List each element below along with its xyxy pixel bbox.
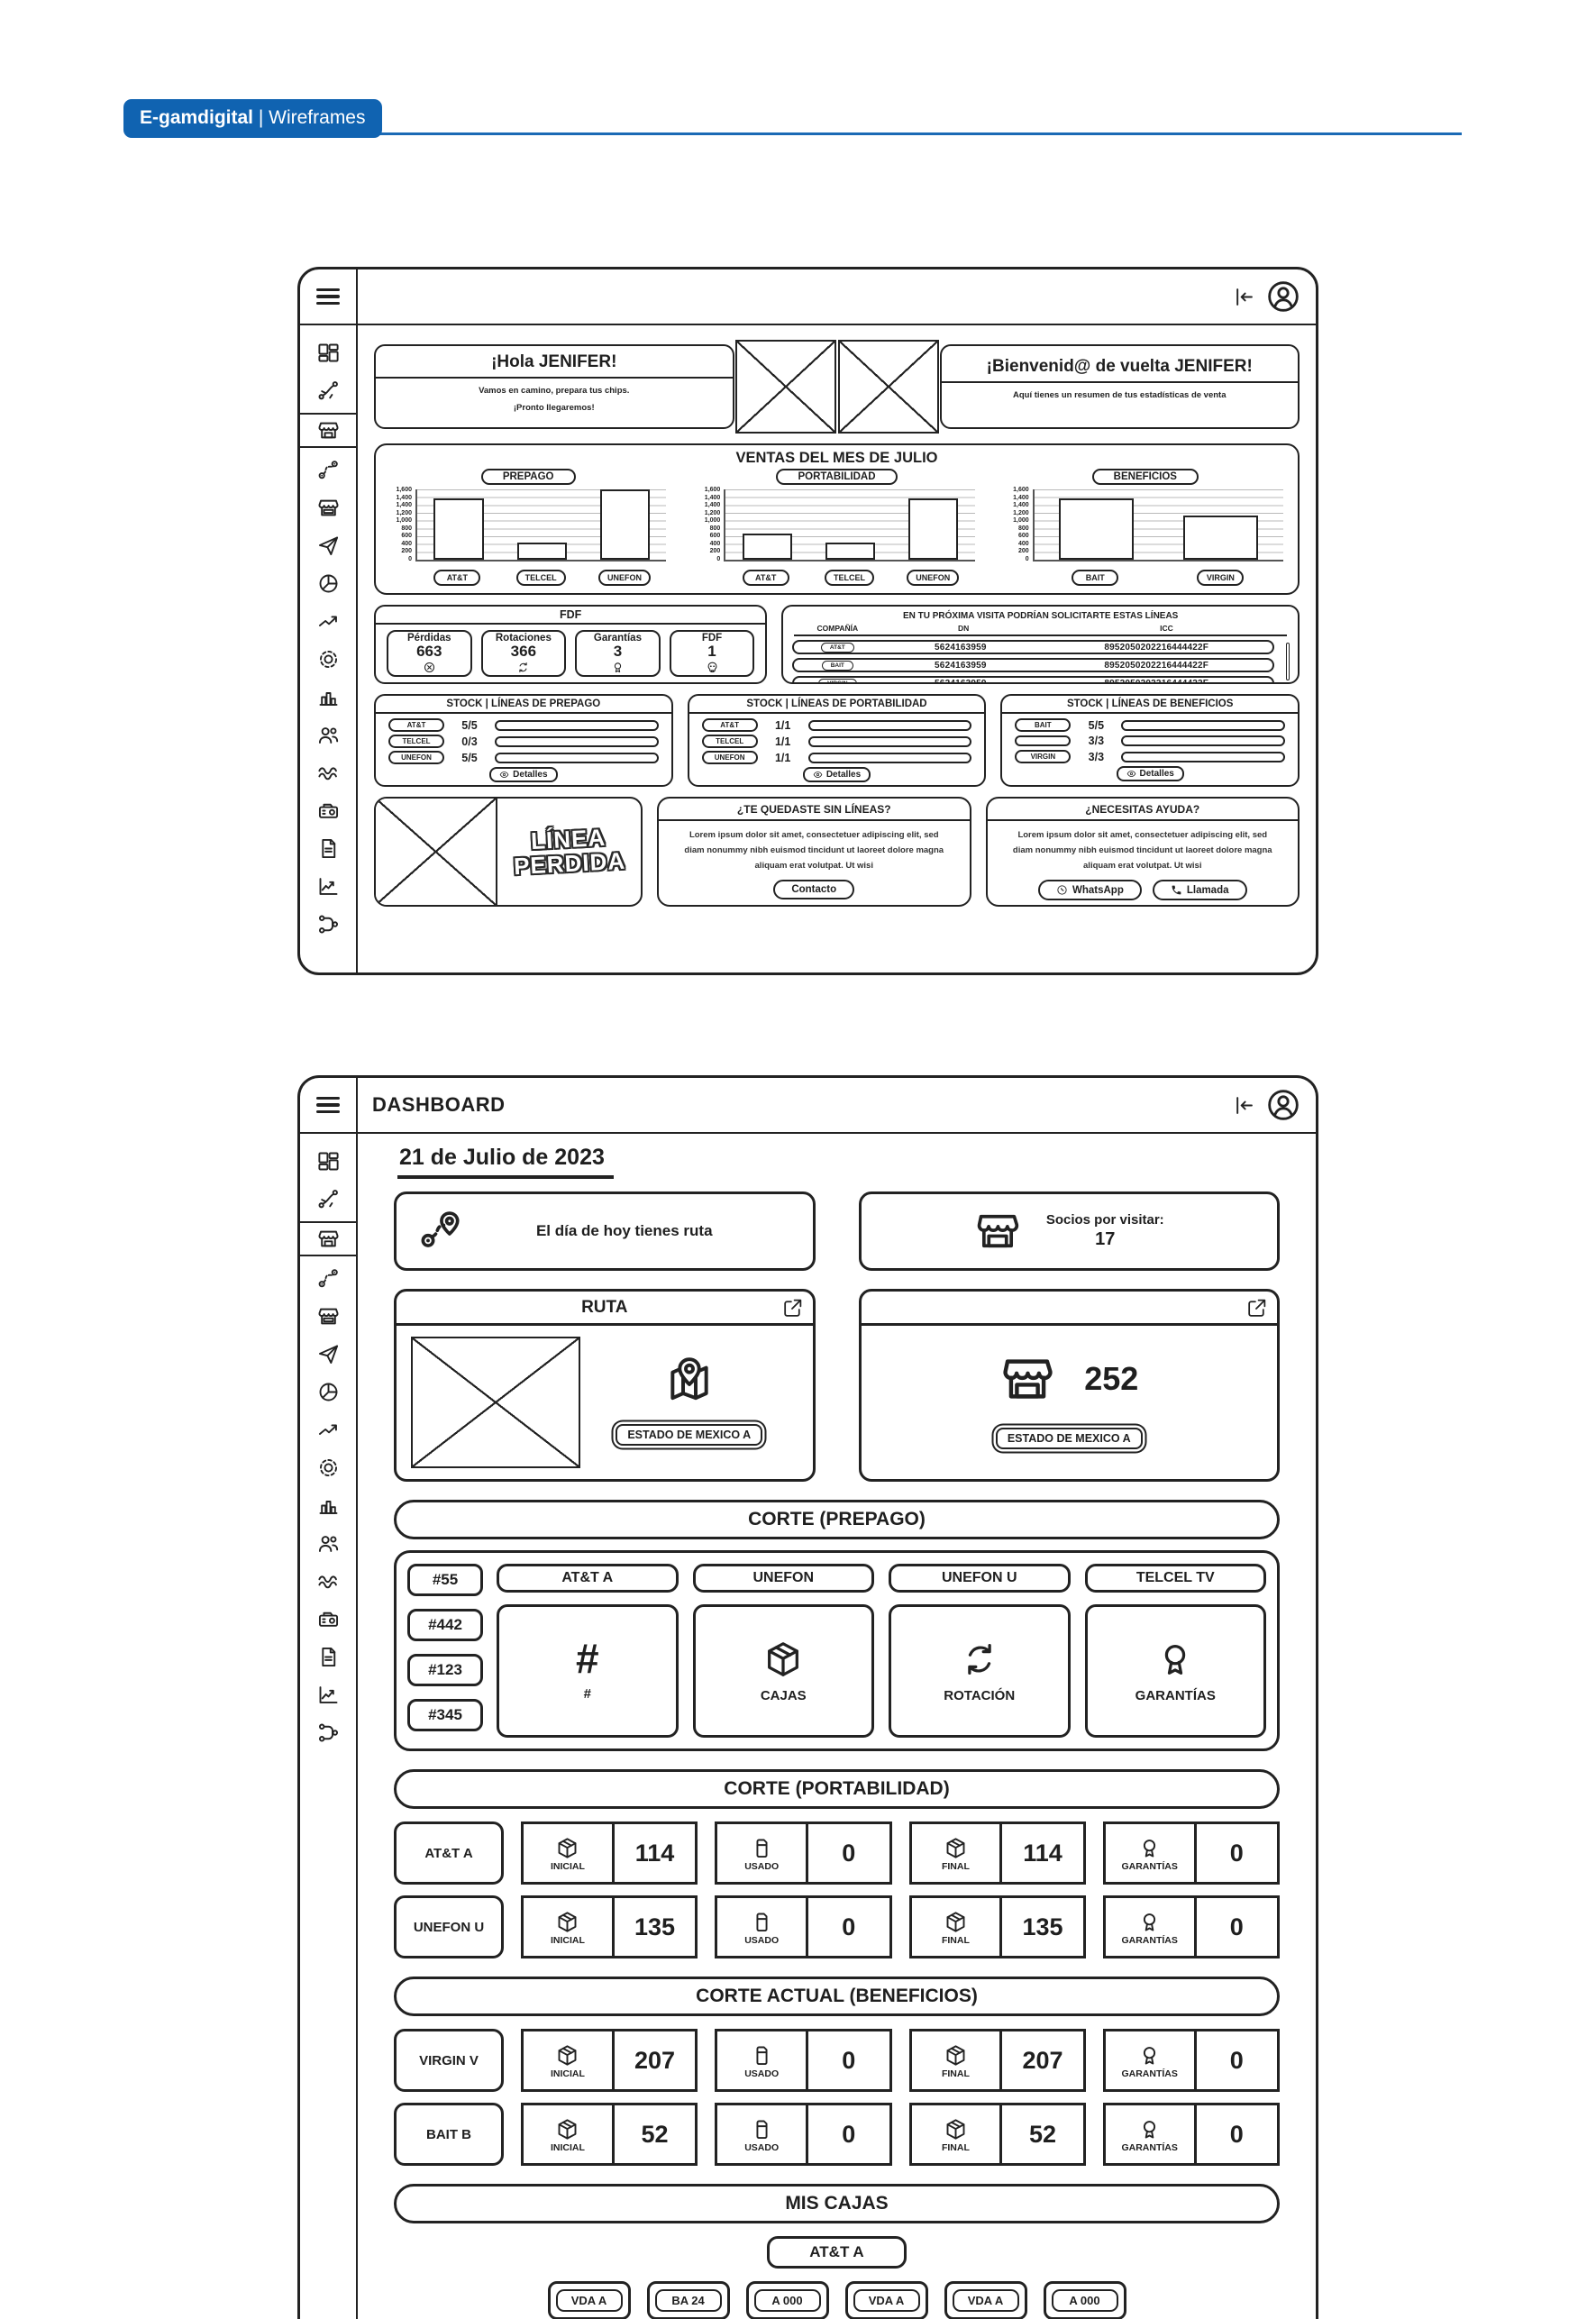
column-ICC: ICC [1046, 624, 1287, 633]
company-chip: AT&T [821, 643, 854, 653]
app-header [358, 269, 1316, 325]
x-label-UNEFON: UNEFON [598, 570, 651, 586]
greeting-subtitle: Vamos en camino, prepara tus chips. ¡Pro… [376, 379, 733, 416]
rotate-icon [959, 1639, 1000, 1680]
stock-value: 3/3 [1080, 751, 1112, 763]
dn-value: 5624163959 [880, 643, 1040, 653]
socios-count: 17 [1046, 1229, 1164, 1250]
whatsapp-icon [1056, 884, 1068, 896]
eye-icon [813, 770, 823, 780]
stock-card: STOCK | LÍNEAS DE PREPAGOAT&T5/5TELCEL0/… [374, 694, 673, 787]
bar-AT&T [433, 498, 483, 560]
carrier-chip: TELCEL [702, 735, 758, 748]
bar-BAIT [1059, 498, 1134, 560]
stock-progress [495, 753, 659, 763]
stock-value: 1/1 [767, 735, 799, 748]
company-chip: BAIT [822, 661, 853, 671]
stock-progress [495, 736, 659, 747]
storefront-icon [974, 1208, 1021, 1255]
icc-value: 8952050202216444422F [1040, 679, 1272, 685]
x-label-TELCEL: TELCEL [516, 570, 566, 586]
corte-card-cajas[interactable]: CAJAS [693, 1604, 875, 1738]
sidebar-item-settings[interactable] [300, 644, 356, 675]
stat-inicial: INICIAL52 [521, 2103, 698, 2166]
image-placeholder [376, 799, 497, 905]
medal-icon [1137, 1910, 1162, 1934]
stat-usado: USADO0 [715, 2103, 891, 2166]
medal-icon [1154, 1639, 1196, 1680]
sidebar-item-routes[interactable] [300, 375, 356, 406]
hamburger-menu-button[interactable] [300, 1078, 356, 1134]
stat-inicial: INICIAL114 [521, 1821, 698, 1885]
chart-title: PREPAGO [481, 469, 576, 485]
stock-value: 5/5 [1080, 719, 1112, 732]
stock-progress [495, 720, 659, 731]
x-label-VIRGIN: VIRGIN [1197, 570, 1244, 586]
stock-row-item: 3/3 [1015, 735, 1285, 747]
sidebar-item-pie[interactable] [300, 568, 356, 599]
bar-VIRGIN [1183, 516, 1258, 560]
chart-title: PORTABILIDAD [776, 469, 897, 485]
sidebar-item-send[interactable] [300, 530, 356, 561]
sidebar-item-scanner[interactable] [300, 1603, 356, 1635]
help-title: ¿TE QUEDASTE SIN LÍNEAS? [659, 799, 970, 821]
stat-garantías: GARANTÍAS0 [1103, 1895, 1280, 1958]
sidebar-item-store[interactable] [300, 1221, 356, 1256]
rotate-icon [516, 661, 530, 674]
stat-final: FINAL52 [909, 2103, 1086, 2166]
linea-perdida-card: LÍNEA PERDIDA [374, 797, 643, 907]
sidebar-item-dashboard[interactable] [300, 1146, 356, 1177]
phone-icon [1171, 884, 1182, 896]
stat-garantías: GARANTÍAS0 [1103, 1821, 1280, 1885]
box-icon [555, 1910, 579, 1934]
ruta-panel: RUTA ESTADO DE MEXICO A [394, 1289, 816, 1482]
socios-label: Socios por visitar: [1046, 1212, 1164, 1228]
prepago-cards: ##CAJASROTACIÓNGARANTÍAS [497, 1604, 1266, 1738]
stat-final: FINAL114 [909, 1821, 1086, 1885]
section-header-mis-cajas: MIS CAJAS [394, 2184, 1280, 2223]
contacto-button[interactable]: Contacto [773, 880, 854, 899]
sidebar-item-store-alt[interactable] [300, 1301, 356, 1332]
sidebar-item-reports[interactable] [300, 871, 356, 902]
sidebar-item-settings[interactable] [300, 1452, 356, 1484]
logout-icon[interactable] [1232, 285, 1256, 309]
stat-garantías: GARANTÍAS0 [1103, 2029, 1280, 2092]
charts-row: PREPAGO1,6001,4001,4001,2001,00080060040… [390, 469, 1283, 586]
corte-row-bait-b: BAIT BINICIAL52USADO0FINAL52GARANTÍAS0 [394, 2103, 1280, 2166]
dn-value: 5624163959 [880, 661, 1040, 671]
corte-prepago-panel: #55#442#123#345 AT&T AUNEFONUNEFON UTELC… [394, 1550, 1280, 1751]
ruta-title: RUTA [581, 1298, 627, 1318]
detalles-button[interactable]: Detalles [803, 767, 871, 782]
medal-icon [1137, 2117, 1162, 2141]
sim-icon [750, 1910, 774, 1934]
wireframe-screen-home: ¡Hola JENIFER! Vamos en camino, prepara … [297, 267, 1318, 975]
scrollbar[interactable] [1286, 643, 1290, 680]
help-body: Lorem ipsum dolor sit amet, consectetuer… [659, 822, 970, 873]
box-icon [944, 2043, 968, 2068]
carrier-chip: VIRGIN [1015, 750, 1071, 763]
icc-value: 8952050202216444422F [1040, 661, 1272, 671]
bar-UNEFON [908, 498, 958, 560]
stock-value: 1/1 [767, 719, 799, 732]
caja-chip-55[interactable]: #55 [407, 1564, 483, 1596]
circlex-icon [423, 661, 436, 674]
caja-bottom-chip[interactable]: VDA A [944, 2281, 1027, 2319]
sidebar [300, 269, 358, 972]
tab-telcel-tv[interactable]: TELCEL TV [1085, 1564, 1267, 1593]
stock-card: STOCK | LÍNEAS DE BENEFICIOSBAIT5/53/3VI… [1000, 694, 1300, 787]
sales-charts-card: VENTAS DEL MES DE JULIO PREPAGO1,6001,40… [374, 443, 1300, 595]
stock-title: STOCK | LÍNEAS DE BENEFICIOS [1002, 696, 1298, 714]
map-pin-icon [664, 1356, 715, 1406]
sidebar-item-activity[interactable] [300, 1566, 356, 1597]
stock-progress [1121, 720, 1285, 731]
avatar-icon[interactable] [1265, 1087, 1301, 1123]
carrier-chip: AT&T [702, 718, 758, 732]
x-axis-labels: AT&TTELCELUNEFON [390, 570, 666, 586]
sidebar [300, 1078, 358, 2319]
sidebar-item-route-map[interactable] [300, 454, 356, 486]
greeting-card-left: ¡Hola JENIFER! Vamos en camino, prepara … [374, 344, 734, 429]
bar-AT&T [743, 534, 792, 560]
stock-value: 5/5 [453, 752, 486, 764]
stock-progress [808, 736, 972, 747]
sidebar-item-route-map[interactable] [300, 1263, 356, 1294]
sidebar-item-pie[interactable] [300, 1376, 356, 1408]
x-label-AT&T: AT&T [743, 570, 789, 586]
medal-icon [1137, 2043, 1162, 2068]
sidebar-item-reports[interactable] [300, 1679, 356, 1711]
date-heading: 21 de Julio de 2023 [397, 1145, 614, 1179]
detalles-button[interactable]: Detalles [1117, 766, 1184, 781]
plot-area [415, 489, 666, 561]
stock-row-item: AT&T5/5 [388, 718, 659, 732]
section-header-prepago: CORTE (PREPAGO) [394, 1500, 1280, 1539]
whatsapp-button[interactable]: WhatsApp [1038, 880, 1142, 900]
help-card: ¿NECESITAS AYUDA?Lorem ipsum dolor sit a… [986, 797, 1300, 907]
carrier-chip [1015, 735, 1071, 746]
beneficios-rows: VIRGIN VINICIAL207USADO0FINAL207GARANTÍA… [394, 2029, 1280, 2166]
sim-icon [750, 2043, 774, 2068]
caja-bottom-chip[interactable]: A 000 [746, 2281, 829, 2319]
page-title: DASHBOARD [372, 1093, 506, 1117]
box-icon [762, 1639, 804, 1680]
fdf-stat-fdf: FDF1 [670, 630, 755, 677]
sim-icon [750, 1836, 774, 1860]
socios-total: 252 [1084, 1360, 1138, 1398]
corte-row-unefon-u: UNEFON UINICIAL135USADO0FINAL135GARANTÍA… [394, 1895, 1280, 1958]
x-axis-labels: AT&TTELCELUNEFON [698, 570, 974, 586]
brand-subtitle: | Wireframes [259, 107, 366, 128]
lines-table-title: EN TU PRÓXIMA VISITA PODRÍAN SOLICITARTE… [783, 607, 1298, 624]
stock-value: 5/5 [453, 719, 486, 732]
stock-row-item: VIRGIN3/3 [1015, 750, 1285, 763]
greeting-title: ¡Hola JENIFER! [376, 346, 733, 377]
corte-card-garantías[interactable]: GARANTÍAS [1085, 1604, 1267, 1738]
medal-icon [1137, 1836, 1162, 1860]
caja-chip-345[interactable]: #345 [407, 1699, 483, 1731]
bar-TELCEL [825, 543, 875, 561]
detalles-button[interactable]: Detalles [489, 767, 557, 782]
stock-progress [1121, 735, 1285, 746]
skull-icon [706, 661, 719, 674]
bar-chart-portabilidad: PORTABILIDAD1,6001,4001,4001,2001,000800… [698, 469, 974, 586]
y-axis-labels: 1,6001,4001,4001,2001,0008006004002000 [1008, 487, 1033, 562]
plot-area [724, 489, 974, 561]
stock-value: 0/3 [453, 735, 486, 748]
caja-bottom-chip[interactable]: A 000 [1044, 2281, 1126, 2319]
carrier-chip: UNEFON [388, 751, 444, 764]
box-icon [944, 2117, 968, 2141]
mis-cajas-tab[interactable]: AT&T A [767, 2236, 906, 2269]
carrier-label[interactable]: BAIT B [394, 2103, 504, 2166]
corte-card-#[interactable]: ## [497, 1604, 679, 1738]
stat-inicial: INICIAL135 [521, 1895, 698, 1958]
caja-chip-123[interactable]: #123 [407, 1654, 483, 1686]
line-row-AT&T[interactable]: AT&T56241639598952050202216444422F [792, 640, 1274, 654]
sidebar-item-routes[interactable] [300, 1183, 356, 1215]
wireframe-screen-dashboard: DASHBOARD 21 de Julio de 2023 El día de … [297, 1075, 1318, 2319]
sidebar-item-scanner[interactable] [300, 795, 356, 826]
y-axis-labels: 1,6001,4001,4001,2001,0008006004002000 [390, 487, 415, 562]
stock-row-item: TELCEL1/1 [702, 735, 972, 748]
help-title: ¿NECESITAS AYUDA? [988, 799, 1299, 821]
sidebar-item-stats[interactable] [300, 1490, 356, 1521]
socios-panel: 252 ESTADO DE MEXICO A [859, 1289, 1281, 1482]
page-title-badge: E-gamdigital | Wireframes [123, 99, 382, 138]
carrier-chip: TELCEL [388, 735, 444, 748]
caja-bottom-chip[interactable]: VDA A [548, 2281, 631, 2319]
stock-card: STOCK | LÍNEAS DE PORTABILIDADAT&T1/1TEL… [688, 694, 987, 787]
column-DN: DN [880, 624, 1046, 633]
x-label-BAIT: BAIT [1072, 570, 1118, 586]
brand-name: E-gamdigital [140, 107, 253, 128]
sidebar-item-users[interactable] [300, 1528, 356, 1559]
box-icon [555, 1836, 579, 1860]
external-link-icon[interactable] [1245, 1297, 1268, 1319]
fdf-title: FDF [376, 607, 765, 625]
stock-progress [808, 753, 972, 763]
route-banner-label: El día de hoy tienes ruta [463, 1222, 813, 1240]
sidebar-item-activity[interactable] [300, 757, 356, 789]
stock-row-item: TELCEL0/3 [388, 735, 659, 748]
caja-chip-442[interactable]: #442 [407, 1609, 483, 1641]
stock-value: 3/3 [1080, 735, 1112, 747]
bar-UNEFON [600, 489, 650, 560]
fdf-stat-garantías: Garantías3 [575, 630, 661, 677]
x-label-AT&T: AT&T [433, 570, 480, 586]
icc-value: 8952050202216444422F [1040, 643, 1272, 653]
x-axis-labels: BAITVIRGIN [1008, 570, 1283, 586]
sidebar-item-network[interactable] [300, 1717, 356, 1748]
linea-perdida-logo: LÍNEA PERDIDA [495, 797, 643, 907]
sidebar-item-store[interactable] [300, 413, 356, 448]
stat-final: FINAL207 [909, 2029, 1086, 2092]
stat-usado: USADO0 [715, 1895, 891, 1958]
carrier-chip: AT&T [388, 718, 444, 732]
sidebar-item-send[interactable] [300, 1338, 356, 1370]
logout-icon[interactable] [1232, 1093, 1256, 1118]
section-header-beneficios: CORTE ACTUAL (BENEFICIOS) [394, 1977, 1280, 2016]
carrier-chip: BAIT [1015, 718, 1071, 732]
carrier-label[interactable]: VIRGIN V [394, 2029, 504, 2092]
hamburger-menu-button[interactable] [300, 269, 356, 325]
stock-progress [808, 720, 972, 731]
lines-table-header: COMPAÑÍADNICC [794, 624, 1287, 636]
sidebar-items [300, 325, 356, 972]
fdf-card: FDF Pérdidas663Rotaciones366Garantías3FD… [374, 605, 767, 684]
stock-row-item: BAIT5/5 [1015, 718, 1285, 732]
stock-row-item: AT&T1/1 [702, 718, 972, 732]
lines-table-card: EN TU PRÓXIMA VISITA PODRÍAN SOLICITARTE… [781, 605, 1300, 684]
route-banner-card[interactable]: El día de hoy tienes ruta [394, 1191, 816, 1271]
stock-row-item: UNEFON1/1 [702, 751, 972, 764]
prepago-tabs: AT&T AUNEFONUNEFON UTELCEL TV [497, 1564, 1266, 1593]
eye-icon [1126, 769, 1136, 779]
carrier-chip: UNEFON [702, 751, 758, 764]
charts-title: VENTAS DEL MES DE JULIO [390, 450, 1283, 467]
map-image-placeholder [411, 1337, 580, 1468]
box-icon [555, 2117, 579, 2141]
avatar-icon[interactable] [1265, 278, 1301, 315]
sidebar-item-store-alt[interactable] [300, 492, 356, 524]
tab-unefon[interactable]: UNEFON [693, 1564, 875, 1593]
caja-bottom-chip[interactable]: VDA A [845, 2281, 928, 2319]
chart-title: BENEFICIOS [1092, 469, 1199, 485]
caja-bottom-chip[interactable]: BA 24 [647, 2281, 730, 2319]
corte-row-at-t-a: AT&T AINICIAL114USADO0FINAL114GARANTÍAS0 [394, 1821, 1280, 1885]
fdf-stats: Pérdidas663Rotaciones366Garantías3FDF1 [376, 625, 765, 682]
storefront-icon [999, 1351, 1055, 1407]
sim-icon [750, 2117, 774, 2141]
help-card: ¿TE QUEDASTE SIN LÍNEAS?Lorem ipsum dolo… [657, 797, 971, 907]
sidebar-item-stats[interactable] [300, 681, 356, 713]
sidebar-item-document[interactable] [300, 1641, 356, 1673]
fdf-stat-pérdidas: Pérdidas663 [387, 630, 472, 677]
stat-final: FINAL135 [909, 1895, 1086, 1958]
image-placeholder [735, 340, 836, 434]
section-header-portabilidad: CORTE (PORTABILIDAD) [394, 1769, 1280, 1809]
sidebar-item-users[interactable] [300, 719, 356, 751]
y-axis-labels: 1,6001,4001,4001,2001,0008006004002000 [698, 487, 724, 562]
estado-de-mexico-button[interactable]: ESTADO DE MEXICO A [616, 1424, 762, 1446]
portabilidad-rows: AT&T AINICIAL114USADO0FINAL114GARANTÍAS0… [394, 1821, 1280, 1958]
stat-usado: USADO0 [715, 2029, 891, 2092]
stock-title: STOCK | LÍNEAS DE PREPAGO [376, 696, 671, 714]
stat-usado: USADO0 [715, 1821, 891, 1885]
socios-banner-card[interactable]: Socios por visitar: 17 [859, 1191, 1281, 1271]
eye-icon [499, 770, 509, 780]
stock-value: 1/1 [767, 752, 799, 764]
dn-value: 5624163959 [880, 679, 1040, 685]
stock-row: STOCK | LÍNEAS DE PREPAGOAT&T5/5TELCEL0/… [374, 694, 1300, 787]
sidebar-item-document[interactable] [300, 833, 356, 864]
stock-row-item: UNEFON5/5 [388, 751, 659, 764]
stat-garantías: GARANTÍAS0 [1103, 2103, 1280, 2166]
greeting-row: ¡Hola JENIFER! Vamos en camino, prepara … [374, 340, 1300, 434]
greeting-card-right: ¡Bienvenid@ de vuelta JENIFER! Aquí tien… [940, 344, 1300, 429]
route-pins-icon [416, 1208, 463, 1255]
tab-at-t-a[interactable]: AT&T A [497, 1564, 679, 1593]
plot-area [1033, 489, 1283, 561]
bar-chart-beneficios: BENEFICIOS1,6001,4001,4001,2001,00080060… [1008, 469, 1283, 586]
sidebar-item-trend[interactable] [300, 1414, 356, 1446]
box-icon [555, 2043, 579, 2068]
stock-progress [1121, 752, 1285, 762]
sidebar-items [300, 1134, 356, 2319]
fdf-stat-rotaciones: Rotaciones366 [481, 630, 567, 677]
prepago-chips: #55#442#123#345 [407, 1564, 483, 1738]
corte-card-rotación[interactable]: ROTACIÓN [889, 1604, 1071, 1738]
hamburger-icon [316, 1097, 340, 1114]
bar-TELCEL [517, 543, 567, 561]
stat-inicial: INICIAL207 [521, 2029, 698, 2092]
box-icon [944, 1910, 968, 1934]
sidebar-item-trend[interactable] [300, 606, 356, 637]
x-label-TELCEL: TELCEL [825, 570, 874, 586]
box-icon [944, 1836, 968, 1860]
welcome-subtitle: Aquí tienes un resumen de tus estadístic… [942, 383, 1299, 404]
medal-icon [611, 661, 625, 674]
sidebar-item-dashboard[interactable] [300, 337, 356, 369]
llamada-button[interactable]: Llamada [1153, 880, 1247, 900]
x-label-UNEFON: UNEFON [907, 570, 959, 586]
line-row-BAIT[interactable]: BAIT56241639598952050202216444422F [792, 658, 1274, 672]
line-row-VIRGIN[interactable]: VIRGIN56241639598952050202216444422F [792, 676, 1274, 684]
company-chip: VIRGIN [818, 679, 856, 685]
welcome-title: ¡Bienvenid@ de vuelta JENIFER! [942, 346, 1299, 381]
app-header: DASHBOARD [358, 1078, 1316, 1134]
cajas-chip-row: VDA ABA 24A 000VDA AVDA AA 000 [394, 2281, 1280, 2319]
image-placeholder [838, 340, 939, 434]
help-body: Lorem ipsum dolor sit amet, consectetuer… [988, 822, 1299, 873]
carrier-label[interactable]: UNEFON U [394, 1895, 504, 1958]
carrier-label[interactable]: AT&T A [394, 1821, 504, 1885]
bar-chart-prepago: PREPAGO1,6001,4001,4001,2001,00080060040… [390, 469, 666, 586]
sidebar-item-network[interactable] [300, 908, 356, 940]
tab-unefon-u[interactable]: UNEFON U [889, 1564, 1071, 1593]
hamburger-icon [316, 288, 340, 306]
column-COMPAÑÍA: COMPAÑÍA [794, 624, 880, 633]
stock-title: STOCK | LÍNEAS DE PORTABILIDAD [689, 696, 985, 714]
corte-row-virgin-v: VIRGIN VINICIAL207USADO0FINAL207GARANTÍA… [394, 2029, 1280, 2092]
estado-de-mexico-button[interactable]: ESTADO DE MEXICO A [996, 1428, 1143, 1449]
external-link-icon[interactable] [781, 1297, 804, 1319]
